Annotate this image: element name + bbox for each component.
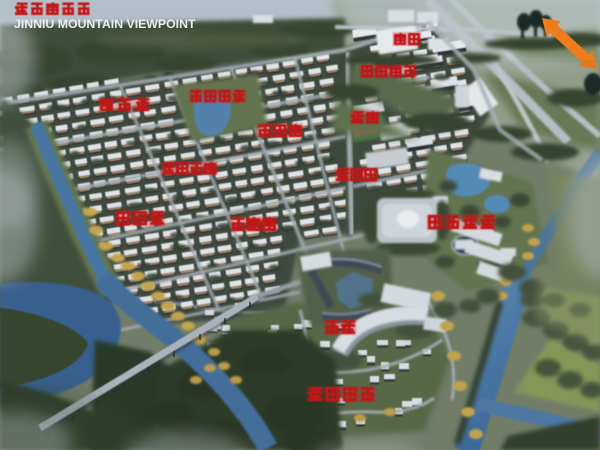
svg-text:JINNIU MOUNTAIN VIEWPOINT: JINNIU MOUNTAIN VIEWPOINT (14, 17, 196, 31)
